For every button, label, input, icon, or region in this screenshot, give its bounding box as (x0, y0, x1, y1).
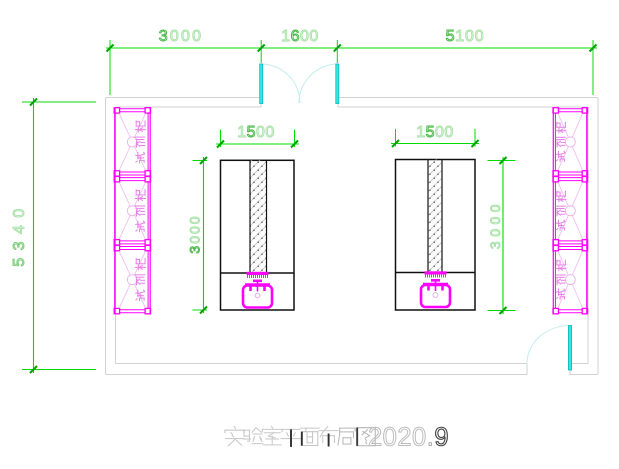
svg-text:1500: 1500 (237, 124, 275, 141)
svg-text:3000: 3000 (487, 200, 503, 249)
svg-text:3000: 3000 (187, 214, 203, 253)
svg-text:2020.9: 2020.9 (368, 424, 449, 452)
svg-text:5340: 5340 (11, 201, 28, 267)
svg-text:1500: 1500 (416, 124, 454, 141)
svg-text:1600: 1600 (281, 28, 319, 45)
svg-text:3000: 3000 (159, 28, 203, 45)
svg-text:5100: 5100 (446, 28, 485, 45)
